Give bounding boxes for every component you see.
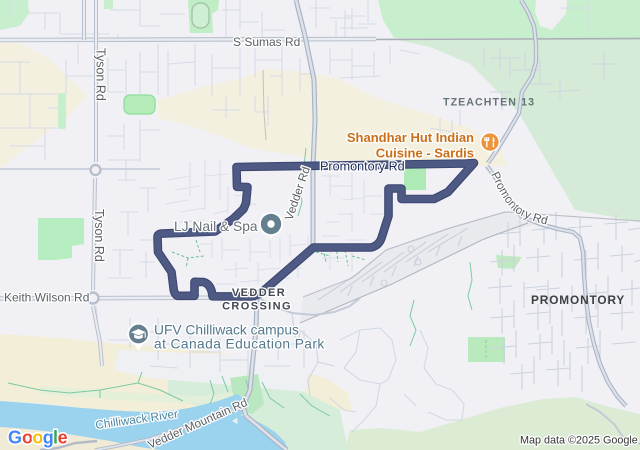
svg-text:Cuisine - Sardis: Cuisine - Sardis [376,146,474,161]
svg-text:S Sumas Rd: S Sumas Rd [233,35,300,49]
svg-text:TZEACHTEN 13: TZEACHTEN 13 [443,97,535,109]
svg-text:VEDDER: VEDDER [232,287,286,299]
svg-text:at Canada Education Park: at Canada Education Park [154,337,325,352]
svg-text:Tyson Rd: Tyson Rd [92,209,106,262]
svg-text:PROMONTORY: PROMONTORY [531,293,625,307]
svg-text:e: e [58,428,68,448]
svg-text:o: o [22,428,33,448]
svg-text:CROSSING: CROSSING [222,301,292,313]
svg-text:Promontory Rd: Promontory Rd [320,160,405,174]
svg-text:UFV Chilliwack campus: UFV Chilliwack campus [154,323,299,338]
svg-text:Keith Wilson Rd: Keith Wilson Rd [4,291,89,305]
svg-text:LJ Nail & Spa: LJ Nail & Spa [174,219,258,234]
svg-text:Tyson Rd: Tyson Rd [94,48,108,101]
svg-text:G: G [8,428,22,448]
svg-text:o: o [32,428,43,448]
svg-text:Shandhar Hut Indian: Shandhar Hut Indian [347,130,474,145]
svg-text:Map data ©2025 Google: Map data ©2025 Google [520,435,638,447]
